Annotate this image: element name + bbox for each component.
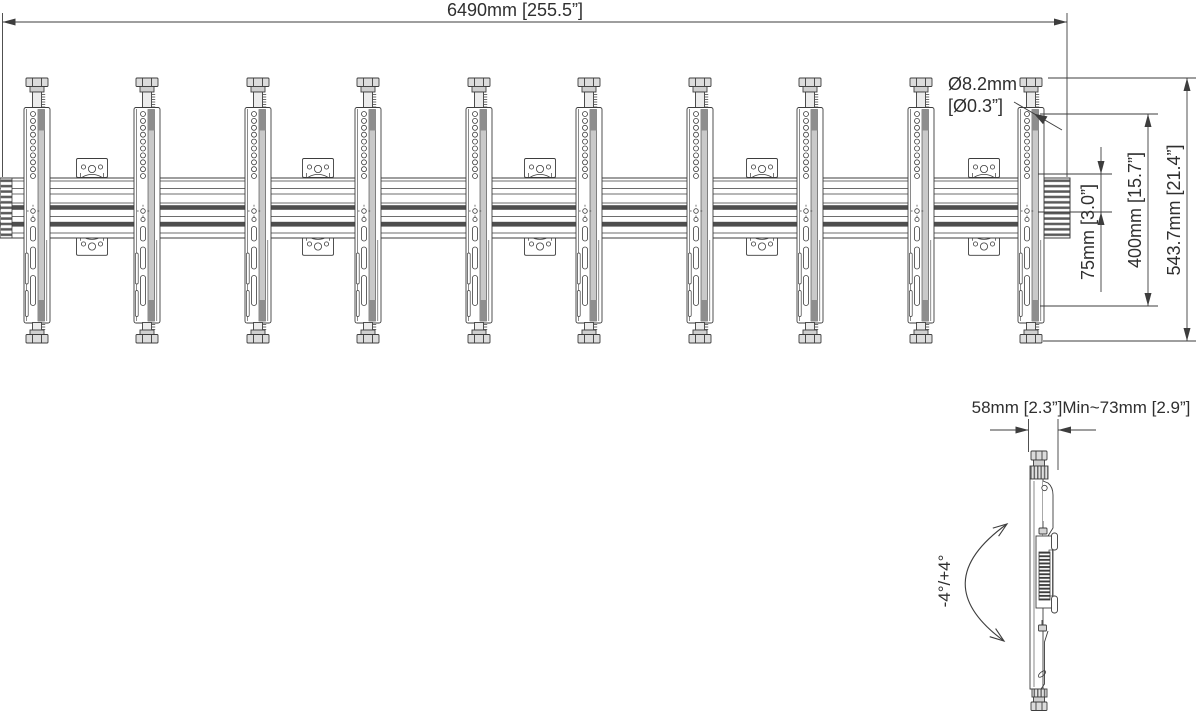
bracket-9 — [908, 78, 934, 343]
bracket-2 — [134, 78, 160, 343]
wall-plate-top-2 — [303, 159, 334, 178]
bracket-3 — [245, 78, 271, 343]
wall-plate-bottom-1 — [77, 236, 108, 255]
bracket-height-label: 543.7mm [21.4”] — [1164, 144, 1184, 275]
rail-right-end-section — [1044, 179, 1070, 237]
bracket-6 — [576, 78, 602, 343]
technical-drawing-page: 6490mm [255.5”] Ø8.2mm [Ø0.3”] 75mm [3.0… — [0, 0, 1200, 715]
vesa-height-label: 400mm [15.7”] — [1125, 152, 1145, 268]
tilt-range-annotation: -4°/+4° — [935, 524, 1007, 641]
side-bracket-profile — [1030, 451, 1058, 711]
technical-drawing: 6490mm [255.5”] Ø8.2mm [Ø0.3”] 75mm [3.0… — [0, 0, 1200, 715]
bracket-5 — [466, 78, 492, 343]
wall-plate-top-3 — [525, 159, 556, 178]
wall-plate-top-1 — [77, 159, 108, 178]
hole-diameter-label-line2: [Ø0.3”] — [948, 96, 1003, 116]
wall-plate-top-4 — [747, 159, 778, 178]
hole-offset-label: 75mm [3.0”] — [1078, 184, 1098, 280]
bracket-7 — [687, 78, 713, 343]
mount-depth-label: 58mm [2.3”]Min~73mm [2.9”] — [972, 398, 1191, 417]
wall-plate-bottom-3 — [525, 236, 556, 255]
rail-left-end-section — [1, 179, 12, 237]
wall-plate-bottom-2 — [303, 236, 334, 255]
wall-plate-bottom-4 — [747, 236, 778, 255]
dimension-mount-depth: 58mm [2.3”]Min~73mm [2.9”] — [972, 398, 1191, 470]
dimension-hole-diameter: Ø8.2mm [Ø0.3”] — [948, 74, 1062, 130]
side-view: 58mm [2.3”]Min~73mm [2.9”] — [935, 398, 1190, 711]
total-width-label: 6490mm [255.5”] — [447, 0, 583, 20]
wall-plate-top-5 — [969, 159, 1000, 178]
hole-diameter-label-line1: Ø8.2mm — [948, 74, 1017, 94]
wall-plate-bottom-5 — [969, 236, 1000, 255]
bracket-8 — [797, 78, 823, 343]
bracket-1 — [24, 78, 50, 343]
tilt-range-label: -4°/+4° — [935, 555, 954, 608]
bracket-4 — [355, 78, 381, 343]
front-view — [0, 78, 1070, 343]
dimension-total-width: 6490mm [255.5”] — [3, 0, 1068, 177]
